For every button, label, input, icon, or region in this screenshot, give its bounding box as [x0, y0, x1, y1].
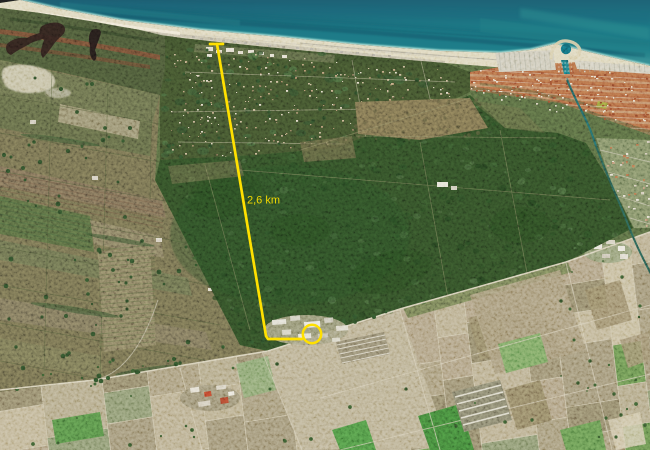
svg-text:2,6 km: 2,6 km [247, 195, 280, 207]
